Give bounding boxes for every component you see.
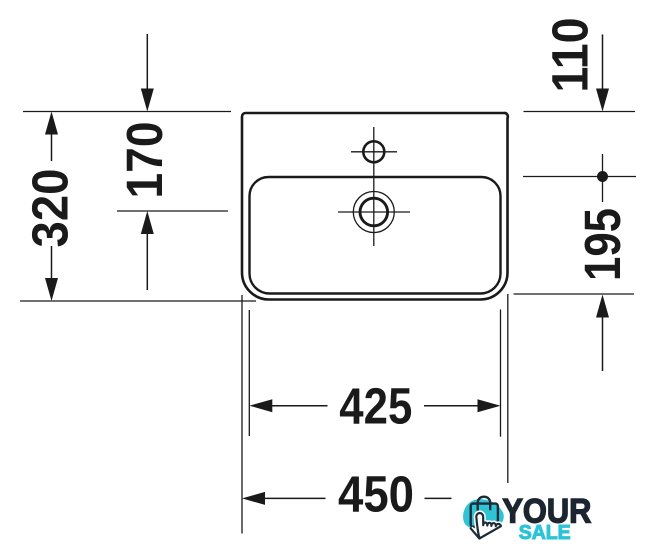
svg-text:450: 450	[338, 466, 414, 523]
svg-text:195: 195	[574, 208, 631, 281]
svg-text:320: 320	[21, 169, 78, 248]
svg-text:170: 170	[116, 122, 173, 199]
svg-text:110: 110	[541, 18, 598, 93]
svg-text:425: 425	[339, 378, 412, 435]
svg-text:SALE: SALE	[519, 521, 571, 544]
